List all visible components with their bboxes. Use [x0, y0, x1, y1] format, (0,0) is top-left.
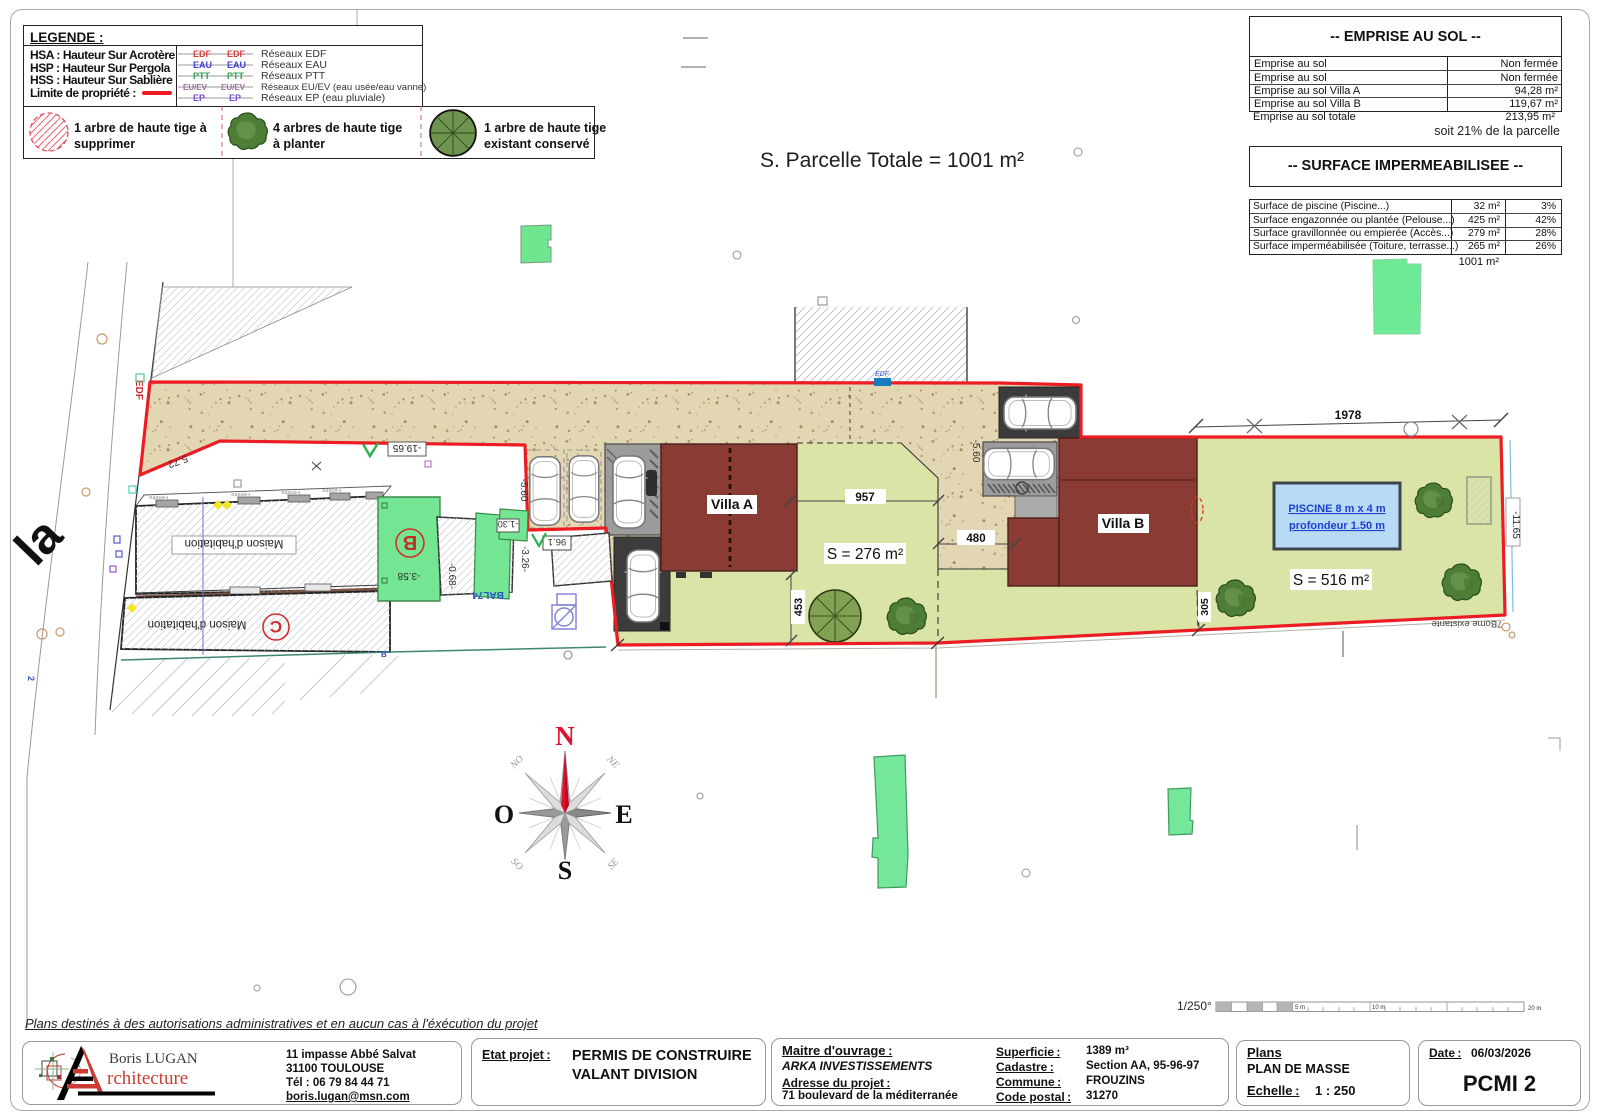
svg-text:S = 516 m²: S = 516 m² [1293, 572, 1369, 589]
svg-text:rchitecture: rchitecture [107, 1068, 188, 1089]
svg-text:NO: NO [508, 754, 526, 772]
svg-text:5 m: 5 m [1295, 1005, 1305, 1011]
svg-text:2: 2 [26, 676, 36, 681]
svg-text:7Bome existante: 7Bome existante [1432, 618, 1503, 629]
svg-text:Réseaux PTT: Réseaux PTT [261, 70, 326, 82]
svg-text:PTT: PTT [227, 71, 245, 81]
svg-text:Villa A: Villa A [711, 496, 753, 512]
svg-text:-0.68-: -0.68- [446, 563, 457, 589]
svg-text:EDF: EDF [227, 49, 246, 59]
svg-text:NE: NE [604, 753, 622, 771]
svg-text:N: N [555, 721, 575, 751]
svg-text:B: B [403, 531, 417, 553]
svg-text:B: B [381, 650, 387, 659]
svg-text:EDF: EDF [875, 371, 890, 378]
svg-text:Fenêtre: Fenêtre [231, 491, 250, 497]
svg-text:Fenêtre: Fenêtre [281, 489, 300, 495]
svg-text:480: 480 [966, 533, 985, 545]
svg-text:-3.26-: -3.26- [519, 546, 530, 572]
svg-text:PTT: PTT [193, 71, 211, 81]
svg-text:Fenêtre: Fenêtre [149, 494, 168, 500]
svg-text:-1.30: -1.30 [498, 519, 519, 529]
svg-text:la: la [4, 506, 74, 576]
svg-text:EDF: EDF [133, 380, 144, 400]
svg-text:Maison d'habitation: Maison d'habitation [185, 537, 284, 549]
svg-text:-5.60: -5.60 [970, 440, 981, 463]
svg-text:E: E [615, 800, 632, 829]
svg-text:Réseaux EP (eau pluviale): Réseaux EP (eau pluviale) [261, 92, 385, 104]
svg-text:EAU: EAU [193, 60, 212, 70]
svg-text:Maison d'habitation: Maison d'habitation [148, 618, 247, 630]
svg-text:Fenêtre: Fenêtre [322, 487, 341, 493]
svg-text:SO: SO [508, 856, 524, 872]
svg-text:C: C [270, 617, 282, 636]
svg-text:EDF: EDF [193, 49, 212, 59]
svg-text:profondeur 1.50 m: profondeur 1.50 m [1289, 520, 1385, 532]
svg-text:SE: SE [606, 857, 622, 873]
svg-text:10 m: 10 m [1372, 1005, 1385, 1011]
svg-text:1/250°: 1/250° [1177, 999, 1212, 1013]
svg-text:O: O [494, 800, 514, 829]
svg-text:-3.58: -3.58 [397, 570, 420, 581]
svg-text:S = 276 m²: S = 276 m² [827, 546, 903, 563]
svg-text:305: 305 [1199, 598, 1211, 616]
svg-text:957: 957 [855, 492, 874, 504]
svg-text:-11.65: -11.65 [1510, 511, 1521, 539]
svg-text:EP: EP [229, 93, 241, 103]
svg-text:1978: 1978 [1335, 408, 1362, 422]
svg-text:EU/EV: EU/EV [183, 83, 208, 92]
svg-text:EP: EP [193, 93, 205, 103]
svg-text:PISCINE 8 m x 4 m: PISCINE 8 m x 4 m [1288, 503, 1385, 515]
svg-text:453: 453 [793, 598, 805, 616]
svg-text:Boris LUGAN: Boris LUGAN [109, 1051, 198, 1067]
svg-text:Villa B: Villa B [1102, 515, 1145, 531]
svg-text:20 m: 20 m [1528, 1006, 1541, 1012]
svg-text:EAU: EAU [227, 60, 246, 70]
svg-text:EU/EV: EU/EV [221, 83, 246, 92]
svg-text:S: S [558, 856, 572, 885]
svg-text:-5.60: -5.60 [518, 479, 529, 502]
svg-text:96.1: 96.1 [548, 536, 567, 547]
svg-text:BAL74: BAL74 [472, 589, 504, 600]
svg-text:-19.65: -19.65 [392, 442, 421, 453]
